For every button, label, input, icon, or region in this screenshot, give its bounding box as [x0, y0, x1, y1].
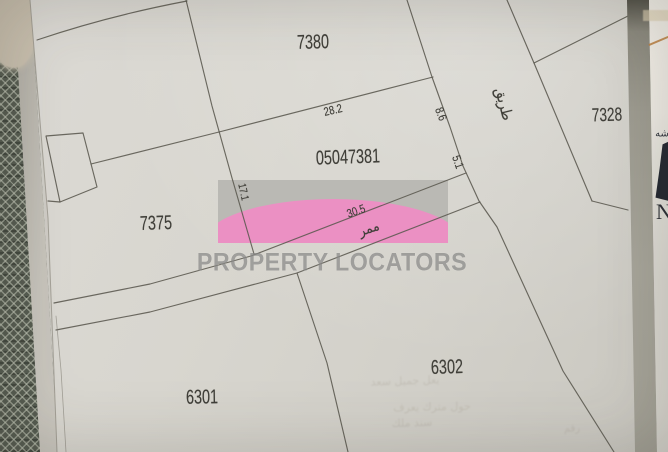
west-long-boundary: [186, 0, 254, 254]
square-connector: [91, 132, 219, 164]
passage-upper-line: [54, 173, 466, 303]
adjacent-serif-letter: N: [656, 201, 668, 225]
bleed-through-text: سند ملك: [391, 416, 432, 430]
plot-label-7375: 7375: [140, 212, 173, 236]
paper-inner-crease: [56, 316, 66, 452]
boundary-6301-6302: [297, 273, 348, 452]
plot-label-6301: 6301: [186, 386, 218, 410]
paper-left-edge-line: [30, 0, 57, 452]
photo-of-cadastral-map: يعل جميل سعد حول مترك يعرف سند ملك رقم 7…: [0, 0, 668, 452]
boundary-7328-top: [534, 16, 628, 63]
plot-boundaries: [0, 0, 668, 452]
adjacent-arabic-glyphs: شه: [655, 129, 668, 140]
structure-square: [46, 133, 97, 202]
bleed-through-text: رقم: [564, 423, 581, 435]
plot-label-6302: 6302: [431, 356, 464, 380]
bleed-through-text: يعل جميل سعد: [370, 373, 439, 388]
top-left-road-curve: [37, 1, 187, 40]
adjacent-cream-band: [643, 10, 668, 21]
plot-label-05047381: 05047381: [316, 145, 381, 170]
boundary-7328-bottom: [592, 201, 628, 210]
watermark-brand-text: PROPERTY LOCATORS: [197, 249, 467, 278]
road-east-edge: [507, 0, 592, 201]
bleed-through-text: حول مترك يعرف: [393, 400, 471, 414]
plot-label-7328: 7328: [591, 104, 622, 127]
plot-label-7380: 7380: [297, 31, 330, 55]
edge-stub: [48, 201, 60, 202]
